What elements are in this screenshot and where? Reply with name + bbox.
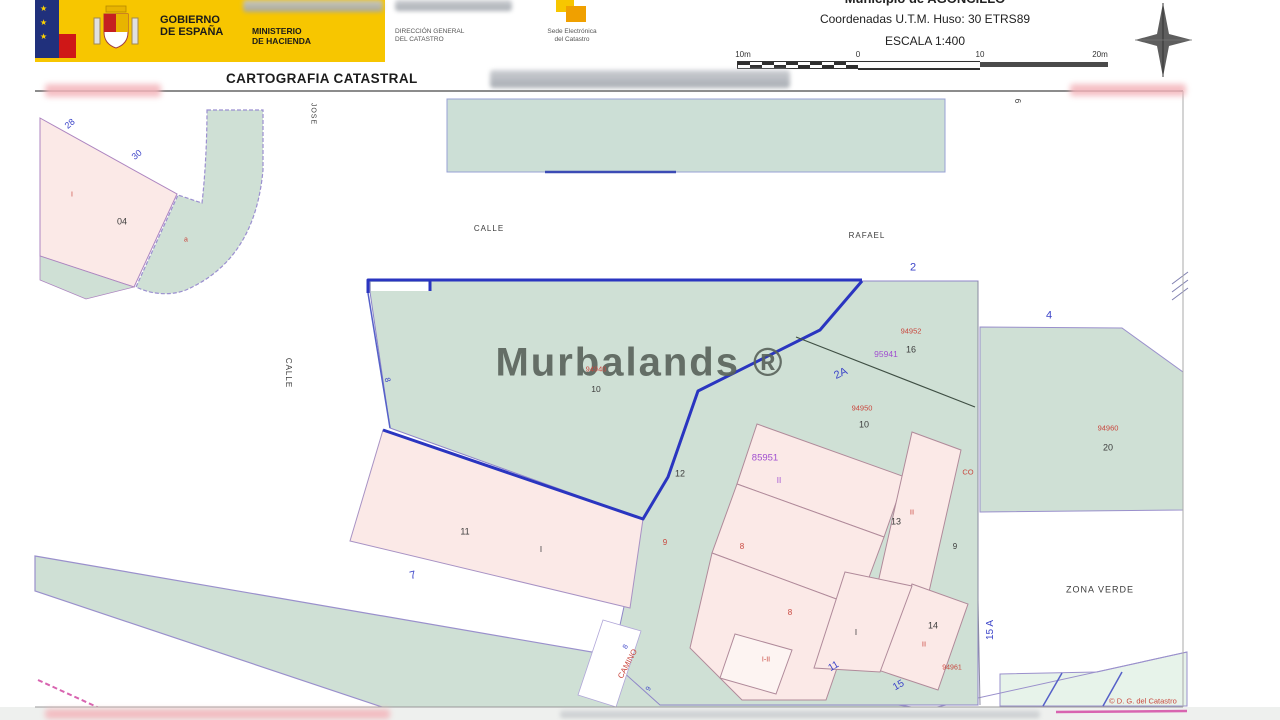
map-label: 10 — [859, 421, 869, 430]
map-label: 94960 — [1098, 424, 1119, 432]
map-label: 15 — [892, 679, 907, 693]
cadastral-map-sheet: ★★★ GOBIERNODE ESPAÑA MINISTERIODE HACIE… — [0, 0, 1280, 720]
map-label: 2A — [833, 366, 850, 382]
map-label: CO — [962, 468, 973, 476]
map-label: 4 — [1046, 311, 1052, 322]
map-label: 8 — [740, 543, 744, 551]
map-label: 2 — [910, 263, 916, 274]
map-label: I-II — [762, 657, 770, 664]
map-label: 85951 — [752, 453, 778, 463]
map-label: 94961 — [942, 665, 961, 672]
map-label: CALLE — [474, 225, 504, 233]
map-label: 94950 — [852, 404, 873, 412]
map-label: II — [910, 508, 914, 516]
map-label: 10 — [591, 385, 600, 394]
map-label: 6 — [1013, 99, 1021, 103]
map-labels-layer: CALLERAFAELCALLEJOSEZONA VERDE283024782A… — [0, 0, 1280, 720]
map-label: 11 — [460, 528, 469, 537]
map-label: 13 — [891, 518, 901, 527]
map-label: 04 — [117, 218, 127, 227]
map-label: II — [777, 477, 781, 485]
map-label: JOSE — [310, 103, 317, 125]
map-label: 30 — [130, 148, 143, 161]
map-label: I — [540, 546, 542, 554]
map-label: 16 — [906, 346, 916, 355]
map-label: 9 — [645, 686, 653, 693]
map-label: 9 — [953, 543, 957, 551]
map-label: 9 — [663, 539, 667, 547]
map-label: 15 A — [986, 620, 996, 640]
map-label: 14 — [928, 622, 938, 631]
map-label: CAMINO — [617, 648, 639, 680]
map-label: 95941 — [874, 350, 898, 359]
map-label: 94952 — [901, 327, 922, 335]
map-label: a — [184, 237, 188, 244]
map-label: 12 — [675, 470, 685, 479]
map-label: 8 — [383, 377, 392, 383]
map-label: 20 — [1103, 444, 1113, 453]
map-label: I — [855, 629, 857, 637]
map-label: 7 — [409, 570, 418, 582]
map-label: 8 — [788, 609, 792, 617]
map-label: 94940 — [586, 365, 607, 373]
map-label: II — [922, 640, 926, 648]
map-label: 28 — [63, 117, 76, 130]
map-label: 11 — [827, 660, 841, 674]
map-label: CALLE — [284, 358, 292, 388]
map-label: RAFAEL — [849, 232, 886, 240]
map-label: © D. G. del Catastro — [1109, 697, 1177, 705]
map-label: ZONA VERDE — [1066, 586, 1134, 595]
map-label: I — [71, 192, 73, 199]
